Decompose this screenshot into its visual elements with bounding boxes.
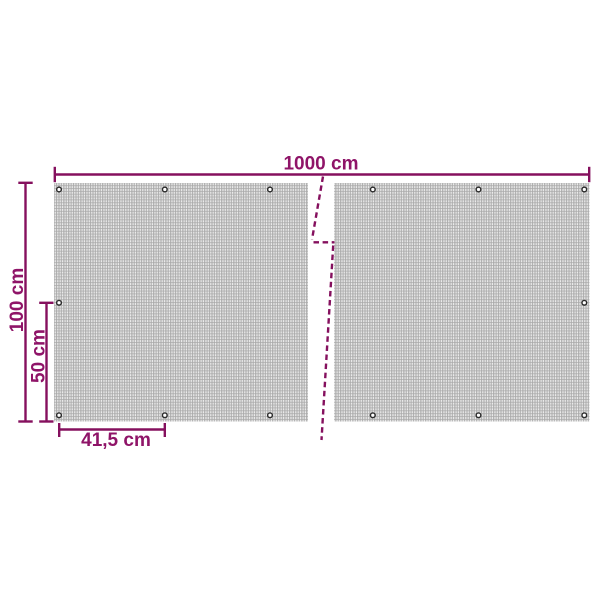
svg-text:100 cm: 100 cm (7, 268, 28, 332)
svg-text:50 cm: 50 cm (28, 329, 49, 383)
svg-text:41,5 cm: 41,5 cm (81, 430, 151, 451)
svg-text:1000 cm: 1000 cm (283, 154, 358, 175)
